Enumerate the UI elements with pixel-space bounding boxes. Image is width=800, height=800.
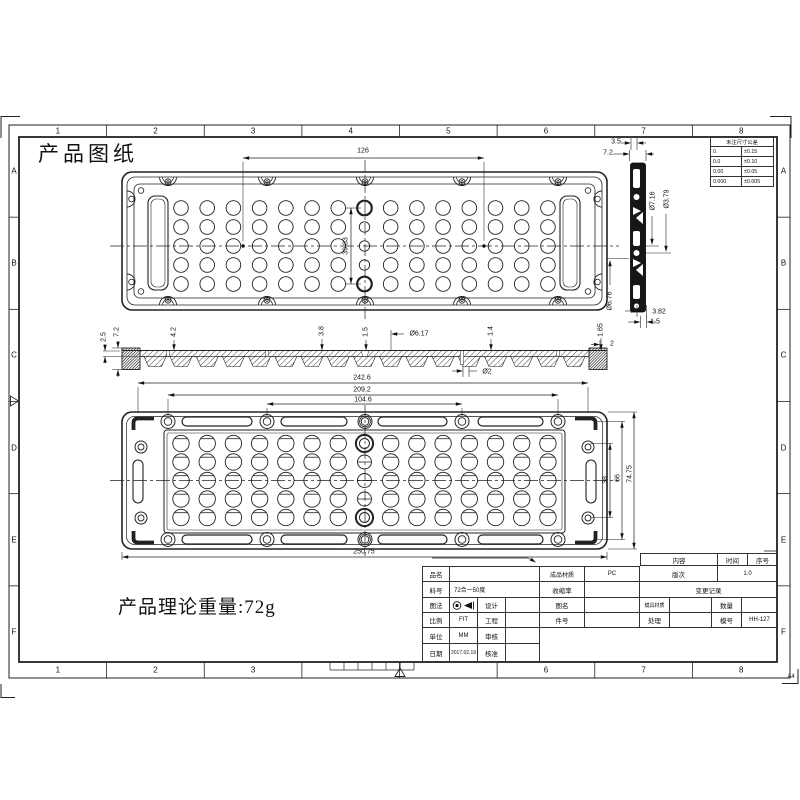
- circle: [278, 435, 294, 451]
- circle: [138, 289, 144, 295]
- dim-3-8: 3.8: [319, 326, 326, 336]
- circle: [582, 441, 594, 453]
- circle: [488, 258, 503, 273]
- circle: [225, 435, 241, 451]
- circle: [382, 509, 398, 525]
- polygon: [327, 357, 349, 367]
- rect: [133, 460, 143, 503]
- circle: [514, 454, 530, 470]
- path: [163, 177, 174, 183]
- arrowhead: [391, 332, 397, 335]
- polygon: [249, 357, 271, 367]
- arrowhead: [489, 344, 492, 350]
- dim-250-75: 250.75: [353, 549, 374, 556]
- top-view: [110, 160, 619, 322]
- circle: [138, 444, 144, 450]
- circle: [541, 258, 556, 273]
- circle: [435, 491, 451, 507]
- zone-row-left-F: F: [12, 627, 17, 636]
- dim-1-5: 1.5: [363, 327, 370, 337]
- tb-serial-label: 序号: [748, 553, 778, 566]
- circle: [554, 418, 562, 426]
- dim-39-83: 39.83: [343, 237, 350, 255]
- circle: [462, 258, 477, 273]
- circle: [330, 491, 346, 507]
- rect: [378, 417, 447, 426]
- rect: [563, 199, 577, 287]
- circle: [263, 536, 271, 544]
- circle: [585, 188, 591, 194]
- polygon: [485, 357, 507, 367]
- zone-row-left-D: D: [11, 443, 17, 452]
- tb-shrinkage-value: [585, 582, 640, 598]
- arrowhead: [552, 393, 558, 396]
- dim-66: 66: [615, 474, 622, 482]
- circle: [595, 279, 601, 285]
- circle: [251, 509, 267, 525]
- circle: [582, 512, 594, 524]
- arrowhead: [637, 141, 643, 144]
- tb-unit-label: 单位: [422, 628, 450, 644]
- circle: [356, 435, 373, 452]
- rect: [633, 169, 640, 188]
- circle: [487, 435, 503, 451]
- circle: [488, 201, 503, 216]
- zone-col-top-3: 3: [251, 127, 255, 136]
- zone-row-right-D: D: [781, 443, 787, 452]
- circle: [487, 491, 503, 507]
- path: [575, 531, 596, 543]
- circle: [585, 289, 591, 295]
- rect: [166, 351, 169, 356]
- circle: [585, 444, 591, 450]
- arrowhead: [267, 402, 273, 405]
- dim-dia-3-79: Ø3.79: [664, 189, 671, 208]
- arrowhead: [122, 555, 128, 558]
- circle: [330, 509, 346, 525]
- path: [1, 117, 20, 139]
- circle: [304, 435, 320, 451]
- arrowhead: [364, 344, 367, 350]
- tb-treatment-value: [670, 613, 712, 628]
- circle: [436, 220, 451, 235]
- circle: [540, 454, 556, 470]
- arrowhead: [664, 246, 667, 252]
- path: [457, 177, 468, 183]
- cad-drawing-canvas: [0, 0, 800, 800]
- circle: [226, 258, 241, 273]
- circle: [541, 277, 556, 292]
- circle: [409, 454, 425, 470]
- circle: [164, 536, 172, 544]
- tb-mold-material-label: 模具材质: [640, 598, 670, 613]
- tolerance-value: ±0.15: [742, 147, 774, 157]
- tb-design-label: 设计: [478, 598, 506, 613]
- arrowhead: [650, 239, 653, 245]
- circle: [409, 509, 425, 525]
- tolerance-value: ±0.10: [742, 157, 774, 167]
- arrowhead: [623, 152, 629, 155]
- tolerance-table: 未注尺寸公差 0. ±0.15 0.0 ±0.10 0.00 ±0.05 0.0…: [710, 136, 774, 187]
- polygon: [222, 357, 244, 367]
- zone-col-top-8: 8: [739, 127, 743, 136]
- dim-7-2-side: 7.2: [603, 150, 613, 157]
- rect: [556, 351, 559, 356]
- circle: [225, 491, 241, 507]
- zone-col-top-2: 2: [153, 127, 157, 136]
- circle: [540, 435, 556, 451]
- dim-38: 38: [603, 476, 610, 484]
- circle: [252, 220, 267, 235]
- zone-row-right-C: C: [781, 351, 787, 360]
- zone-row-right-A: A: [781, 167, 786, 176]
- rect: [182, 535, 252, 544]
- zone-col-bottom-6: 6: [544, 666, 548, 675]
- circle: [279, 220, 294, 235]
- path: [553, 177, 564, 183]
- circle: [305, 201, 320, 216]
- circle: [173, 509, 189, 525]
- dim-dia-2: Ø2: [482, 369, 491, 376]
- circle: [634, 194, 640, 200]
- circle: [199, 435, 215, 451]
- dim-2: 2: [610, 341, 614, 348]
- circle: [173, 435, 189, 451]
- arrowhead: [620, 422, 623, 428]
- circle: [554, 536, 562, 544]
- circle: [436, 277, 451, 292]
- rect: [586, 460, 596, 503]
- circle: [410, 277, 425, 292]
- tb-review-value: [506, 628, 540, 644]
- tb-unit-value: MM: [450, 628, 478, 644]
- arrowhead: [625, 141, 631, 144]
- arrowhead: [138, 381, 144, 384]
- weight-note: 产品理论重量:72g: [118, 592, 276, 619]
- zone-col-top-6: 6: [544, 127, 548, 136]
- polygon: [275, 357, 297, 367]
- circle: [278, 454, 294, 470]
- dim-74-75: 74.75: [627, 465, 634, 483]
- polygon: [301, 357, 323, 367]
- tb-material-value: PC: [585, 566, 640, 582]
- dim-209-2: 209.2: [353, 387, 371, 394]
- dim-1-4: 1.4: [488, 326, 495, 336]
- tb-scale-label: 比例: [422, 613, 450, 628]
- rect: [265, 351, 268, 356]
- circle: [410, 258, 425, 273]
- rect: [378, 535, 447, 544]
- rect: [460, 351, 463, 365]
- arrowhead: [168, 393, 174, 396]
- tb-drawing-name-value: [585, 598, 640, 613]
- tb-revision-label: 版次: [640, 566, 718, 582]
- dim-242-6: 242.6: [353, 375, 371, 382]
- circle: [252, 201, 267, 216]
- circle: [383, 201, 398, 216]
- circle: [278, 491, 294, 507]
- dim-3-5: 3.5: [611, 139, 621, 146]
- path: [262, 177, 273, 183]
- page-title: 产品图纸: [38, 138, 138, 168]
- tolerance-digits: 0.0: [711, 157, 742, 167]
- circle: [251, 435, 267, 451]
- arrowhead: [320, 344, 323, 350]
- dim-dia-6-17: Ø6.17: [409, 331, 428, 338]
- title-block: 品名 料号 72合一50度 图法 设计 比例 FIT 工程 单位 MM 审核 日…: [422, 553, 778, 662]
- circle: [173, 491, 189, 507]
- path: [1, 684, 15, 698]
- polygon: [537, 357, 559, 367]
- tb-scale-value: FIT: [450, 613, 478, 628]
- arrowhead: [632, 412, 635, 418]
- rect: [122, 348, 140, 370]
- tolerance-value: ±0.005: [742, 177, 774, 187]
- tb-time-label: 时间: [718, 553, 748, 566]
- circle: [487, 509, 503, 525]
- tb-review-label: 审核: [478, 628, 506, 644]
- rect: [281, 535, 347, 544]
- dim-dia-7-16: Ø7.16: [650, 191, 657, 210]
- path: [457, 300, 468, 306]
- tolerance-value: ±0.05: [742, 167, 774, 177]
- tb-projection-symbol: [450, 598, 478, 613]
- tb-material-label: 成品材质: [540, 566, 585, 582]
- circle: [174, 201, 189, 216]
- arrowhead: [620, 533, 623, 539]
- circle: [410, 220, 425, 235]
- zone-row-left-C: C: [11, 351, 17, 360]
- circle: [305, 277, 320, 292]
- tb-design-value: [506, 598, 540, 613]
- rect: [633, 231, 640, 246]
- tb-mold-no-label: 模号: [712, 613, 742, 628]
- arrowhead: [457, 369, 463, 372]
- circle: [514, 258, 529, 273]
- circle: [462, 201, 477, 216]
- circle: [263, 418, 271, 426]
- zone-col-top-5: 5: [446, 127, 450, 136]
- circle: [225, 454, 241, 470]
- arrowhead: [478, 156, 484, 159]
- circle: [174, 220, 189, 235]
- tb-product-name-value: [450, 566, 540, 582]
- tb-mold-no-value: HH-127: [742, 613, 778, 628]
- rect: [281, 417, 347, 426]
- circle: [174, 277, 189, 292]
- circle: [488, 220, 503, 235]
- circle: [173, 454, 189, 470]
- zone-col-bottom-3: 3: [251, 666, 255, 675]
- circle: [382, 435, 398, 451]
- tb-remarks-area: [540, 628, 778, 662]
- circle: [514, 277, 529, 292]
- zone-row-left-E: E: [11, 535, 16, 544]
- tb-date-label: 日期: [422, 644, 450, 662]
- tb-quantity-value: [742, 598, 778, 613]
- tb-item-no-label: 件号: [540, 613, 585, 628]
- zone-col-bottom-8: 8: [739, 666, 743, 675]
- circle: [138, 515, 144, 521]
- circle: [435, 509, 451, 525]
- circle: [304, 454, 320, 470]
- circle: [410, 201, 425, 216]
- circle: [330, 454, 346, 470]
- arrowhead: [349, 278, 352, 284]
- circle: [226, 201, 241, 216]
- circle: [461, 509, 477, 525]
- arrowhead: [116, 342, 119, 348]
- rect: [589, 348, 607, 370]
- tb-item-no-value: [585, 613, 640, 628]
- circle: [382, 491, 398, 507]
- circle: [514, 220, 529, 235]
- circle: [634, 304, 639, 309]
- circle: [634, 250, 640, 256]
- rect: [164, 430, 565, 533]
- circle: [359, 513, 369, 523]
- circle: [435, 435, 451, 451]
- polygon: [353, 357, 375, 367]
- tolerance-digits: 0.: [711, 147, 742, 157]
- tb-date-value: 2017.02.19: [450, 644, 478, 662]
- circle: [330, 435, 346, 451]
- zone-col-bottom-1: 1: [56, 666, 60, 675]
- circle: [458, 418, 466, 426]
- tb-engineering-value: [506, 613, 540, 628]
- polygon: [406, 357, 428, 367]
- circle: [305, 258, 320, 273]
- circle: [200, 258, 215, 273]
- circle: [200, 277, 215, 292]
- circle: [226, 220, 241, 235]
- circle: [135, 441, 147, 453]
- circle: [252, 258, 267, 273]
- polygon: [144, 357, 166, 367]
- zone-row-right-B: B: [781, 259, 786, 268]
- circle: [461, 454, 477, 470]
- circle: [200, 201, 215, 216]
- circle: [435, 454, 451, 470]
- tb-treatment-label: 处理: [640, 613, 670, 628]
- arrowhead: [608, 511, 611, 517]
- circle: [461, 435, 477, 451]
- rect: [633, 285, 640, 299]
- circle: [383, 277, 398, 292]
- circle: [461, 491, 477, 507]
- path: [262, 300, 273, 306]
- dim-104-6: 104.6: [354, 397, 372, 404]
- arrowhead: [349, 208, 352, 214]
- circle: [359, 260, 369, 270]
- tolerance-digits: 0.000: [711, 177, 742, 187]
- path: [134, 419, 155, 431]
- circle: [199, 491, 215, 507]
- arrowhead: [646, 152, 652, 155]
- circle: [540, 491, 556, 507]
- tb-drawing-name-label: 图名: [540, 598, 585, 613]
- circle: [199, 509, 215, 525]
- tb-product-name-label: 品名: [422, 566, 450, 582]
- polygon: [196, 357, 218, 367]
- arrowhead: [243, 156, 249, 159]
- polygon: [11, 396, 19, 406]
- tb-engineering-label: 工程: [478, 613, 506, 628]
- tb-quantity-label: 数量: [712, 598, 742, 613]
- circle: [331, 201, 346, 216]
- circle: [199, 454, 215, 470]
- tb-part-no-label: 料号: [422, 582, 450, 598]
- circle: [252, 277, 267, 292]
- circle: [138, 188, 144, 194]
- circle: [331, 220, 346, 235]
- circle: [482, 244, 485, 247]
- zone-col-top-1: 1: [56, 127, 60, 136]
- circle: [278, 509, 294, 525]
- zone-col-top-7: 7: [641, 127, 645, 136]
- circle: [241, 244, 244, 247]
- circle: [304, 509, 320, 525]
- circle: [226, 277, 241, 292]
- arrowhead: [456, 402, 462, 405]
- zone-row-right-F: F: [781, 627, 786, 636]
- circle: [383, 220, 398, 235]
- rect: [478, 417, 543, 426]
- circle: [356, 509, 373, 526]
- circle: [585, 515, 591, 521]
- tolerance-header: 未注尺寸公差: [711, 137, 774, 147]
- circle: [540, 509, 556, 525]
- dim-1-65: 1.65: [598, 323, 605, 337]
- circle: [305, 220, 320, 235]
- path: [163, 300, 174, 306]
- circle: [541, 201, 556, 216]
- tb-shrinkage-label: 收缩率: [540, 582, 585, 598]
- zone-col-bottom-7: 7: [641, 666, 645, 675]
- path: [134, 531, 155, 543]
- arrowhead: [608, 444, 611, 450]
- tolerance-digits: 0.00: [711, 167, 742, 177]
- rect: [151, 199, 165, 287]
- tb-change-record-label: 变更记录: [640, 582, 778, 598]
- circle: [304, 491, 320, 507]
- arrowhead: [172, 344, 175, 350]
- arrowhead: [103, 345, 106, 351]
- arrowhead: [594, 343, 600, 346]
- circle: [514, 491, 530, 507]
- dim-126: 126: [357, 148, 369, 155]
- circle: [409, 491, 425, 507]
- arrowhead: [608, 260, 611, 266]
- arrowhead: [103, 357, 106, 363]
- rect: [478, 535, 543, 544]
- circle: [135, 512, 147, 524]
- circle: [382, 454, 398, 470]
- dim-1-5-side: 1.5: [650, 319, 660, 326]
- zone-col-bottom-2: 2: [153, 666, 157, 675]
- circle: [488, 277, 503, 292]
- arrowhead: [582, 381, 588, 384]
- paper-size-label: A4: [787, 674, 794, 680]
- dim-4-2: 4.2: [171, 327, 178, 337]
- tb-revision-value: 1.0: [718, 566, 778, 582]
- section-view: [122, 348, 607, 370]
- circle: [129, 196, 135, 202]
- tb-approve-value: [506, 644, 540, 662]
- polygon: [380, 357, 402, 367]
- drawing-sheet: 产品图纸 产品理论重量:72g A4 未注尺寸公差 0. ±0.15 0.0 ±…: [0, 0, 800, 800]
- dim-2-5: 2.5: [101, 332, 108, 342]
